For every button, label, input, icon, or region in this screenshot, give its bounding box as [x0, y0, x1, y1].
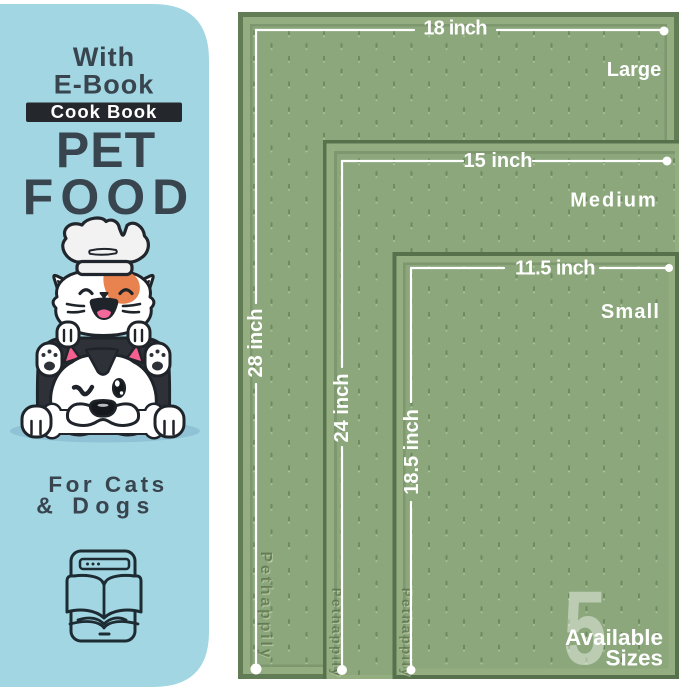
svg-text:With: With	[73, 42, 135, 72]
svg-text:24 inch: 24 inch	[331, 374, 353, 443]
svg-text:18 inch: 18 inch	[423, 18, 486, 40]
svg-text:E-Book: E-Book	[54, 70, 155, 100]
svg-text:11.5 inch: 11.5 inch	[515, 258, 595, 280]
svg-text:18.5 inch: 18.5 inch	[401, 409, 423, 495]
svg-text:15 inch: 15 inch	[464, 150, 533, 172]
svg-text:Medium: Medium	[570, 190, 658, 212]
svg-text:Sizes: Sizes	[605, 646, 663, 671]
svg-text:Pethappily: Pethappily	[257, 552, 274, 661]
svg-text:Cook Book: Cook Book	[51, 101, 158, 122]
svg-text:Small: Small	[601, 301, 660, 323]
svg-text:& Dogs: & Dogs	[36, 493, 156, 519]
svg-text:Large: Large	[607, 59, 661, 81]
svg-text:FOOD: FOOD	[23, 169, 195, 225]
svg-text:28 inch: 28 inch	[245, 309, 267, 378]
